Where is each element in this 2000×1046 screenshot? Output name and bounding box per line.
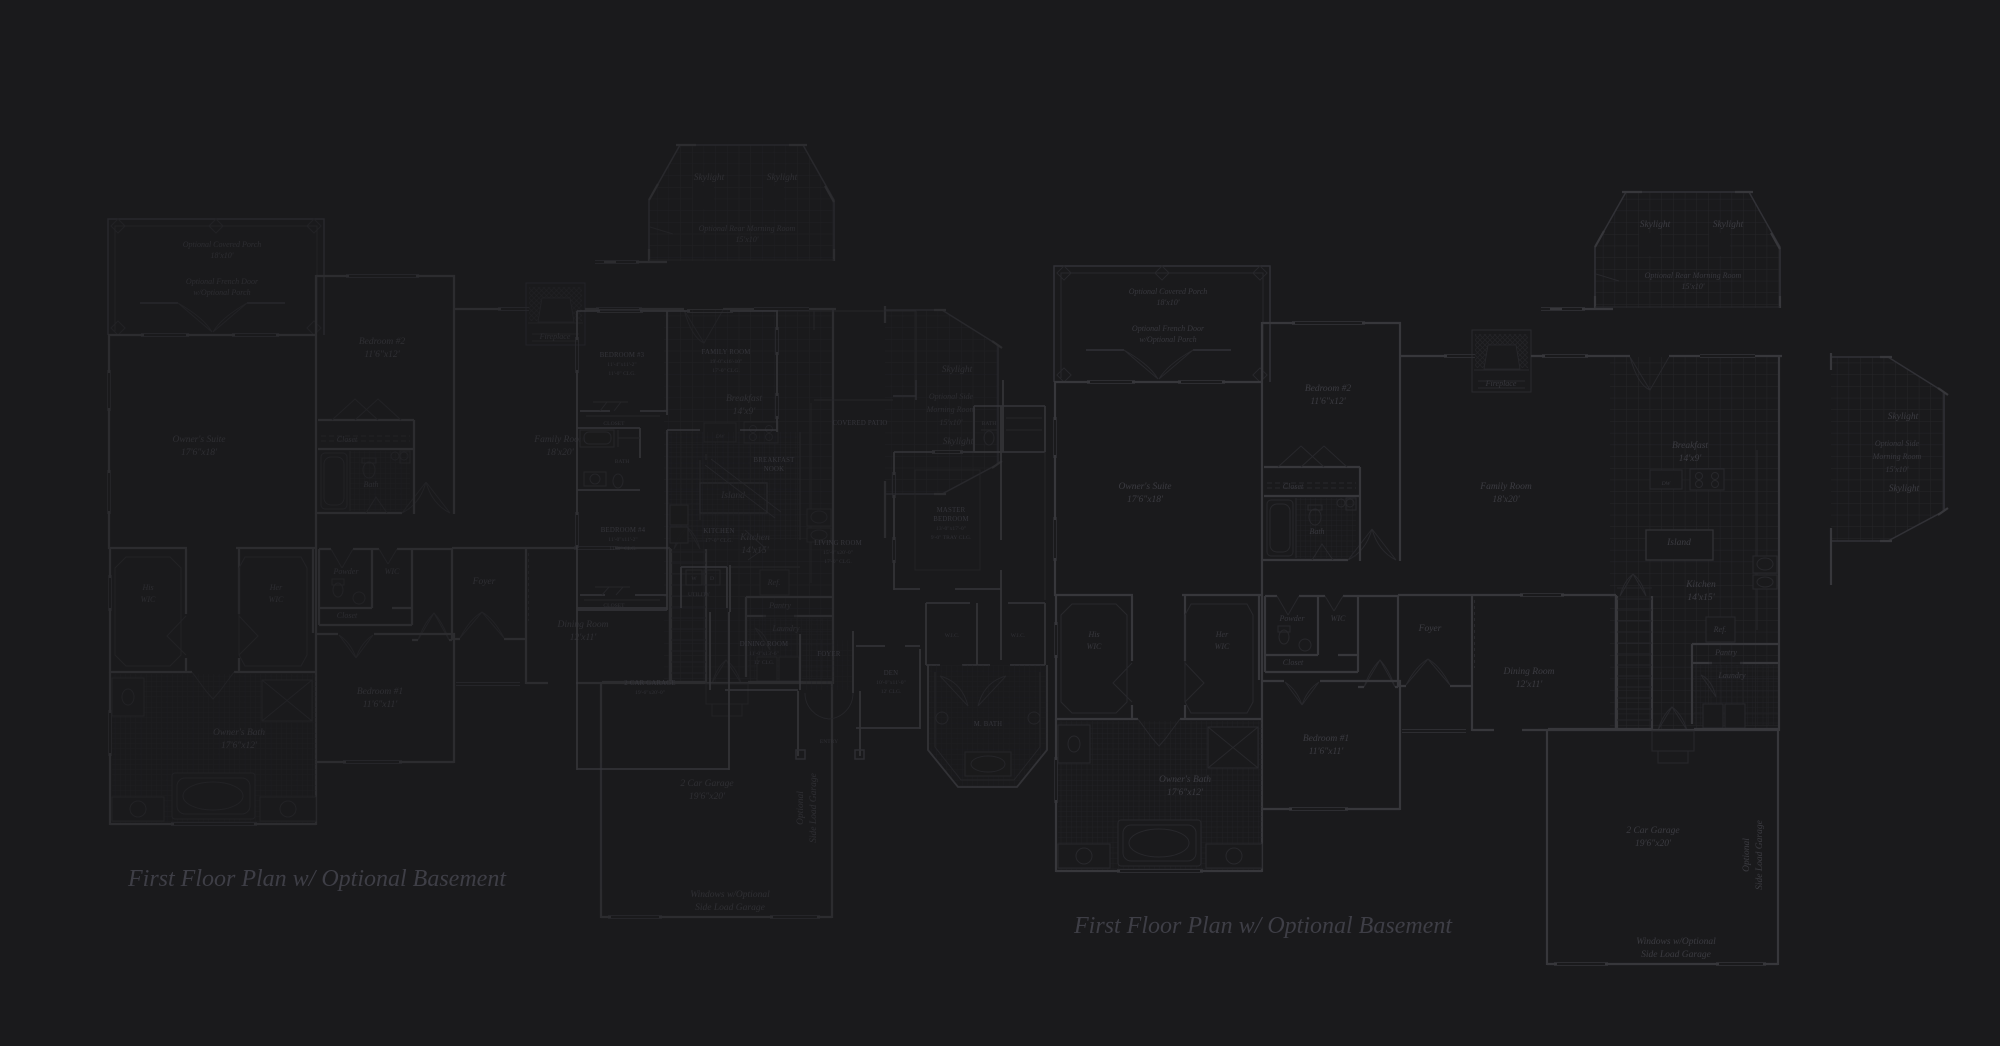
svg-text:W: W [691, 576, 697, 582]
svg-text:11'-0"x11'-2": 11'-0"x11'-2" [608, 537, 637, 543]
svg-text:BATH: BATH [615, 459, 630, 465]
svg-text:11'-0" CLG.: 11'-0" CLG. [609, 546, 637, 552]
svg-text:BEDROOM #4: BEDROOM #4 [601, 527, 646, 534]
svg-text:17'-0" CLG.: 17'-0" CLG. [824, 559, 852, 565]
svg-text:W.I.C.: W.I.C. [1011, 633, 1026, 639]
svg-text:First Floor Plan w/ Optional: First Floor Plan w/ Optional Basement [1073, 913, 1453, 939]
svg-text:10'-0"x11'-0": 10'-0"x11'-0" [876, 680, 906, 686]
svg-text:NOOK: NOOK [764, 466, 784, 473]
svg-text:FOYER: FOYER [817, 651, 841, 658]
svg-text:11'-4"x11'-2": 11'-4"x11'-2" [607, 362, 636, 368]
svg-text:MASTER: MASTER [937, 507, 966, 514]
svg-text:11'-0" CLG.: 11'-0" CLG. [608, 371, 636, 377]
svg-text:BEDROOM: BEDROOM [933, 516, 968, 523]
svg-text:UTILITY: UTILITY [688, 592, 710, 598]
svg-text:First Floor Plan w/ Optional: First Floor Plan w/ Optional Basement [127, 866, 507, 892]
svg-text:W.I.C.: W.I.C. [945, 633, 960, 639]
svg-text:BATH: BATH [982, 421, 997, 427]
svg-text:19'-0"x16'-10": 19'-0"x16'-10" [710, 359, 743, 365]
svg-text:COVERED PATIO: COVERED PATIO [832, 420, 887, 427]
svg-text:15'-0"x20'-0": 15'-0"x20'-0" [823, 550, 853, 556]
svg-text:17'-0" CLG.: 17'-0" CLG. [712, 368, 740, 374]
svg-text:9'-0" TRAY CLG.: 9'-0" TRAY CLG. [931, 535, 972, 541]
svg-text:DINING ROOM: DINING ROOM [740, 641, 788, 648]
svg-text:17'-0" CLG.: 17'-0" CLG. [705, 538, 733, 544]
svg-text:LIVING ROOM: LIVING ROOM [814, 540, 862, 547]
svg-text:KITCHEN: KITCHEN [703, 528, 734, 535]
svg-text:BEDROOM #3: BEDROOM #3 [600, 352, 645, 359]
svg-text:CLOSET: CLOSET [603, 421, 625, 427]
svg-text:12' CLG.: 12' CLG. [881, 689, 902, 695]
svg-text:19'-6"x20'-0": 19'-6"x20'-0" [635, 690, 665, 696]
svg-text:12' CLG.: 12' CLG. [754, 660, 775, 666]
svg-text:M. BATH: M. BATH [974, 721, 1003, 728]
svg-text:D: D [710, 576, 714, 582]
svg-text:11'-0"x13'-6": 11'-0"x13'-6" [749, 651, 779, 657]
svg-text:2 CAR GARAGE: 2 CAR GARAGE [624, 680, 676, 687]
svg-text:BREAKFAST: BREAKFAST [754, 457, 796, 464]
svg-text:DEN: DEN [884, 670, 899, 677]
svg-text:ENTRY: ENTRY [820, 739, 838, 745]
svg-text:FAMILY ROOM: FAMILY ROOM [702, 349, 751, 356]
svg-text:13'-0"x17'-0": 13'-0"x17'-0" [936, 526, 966, 532]
